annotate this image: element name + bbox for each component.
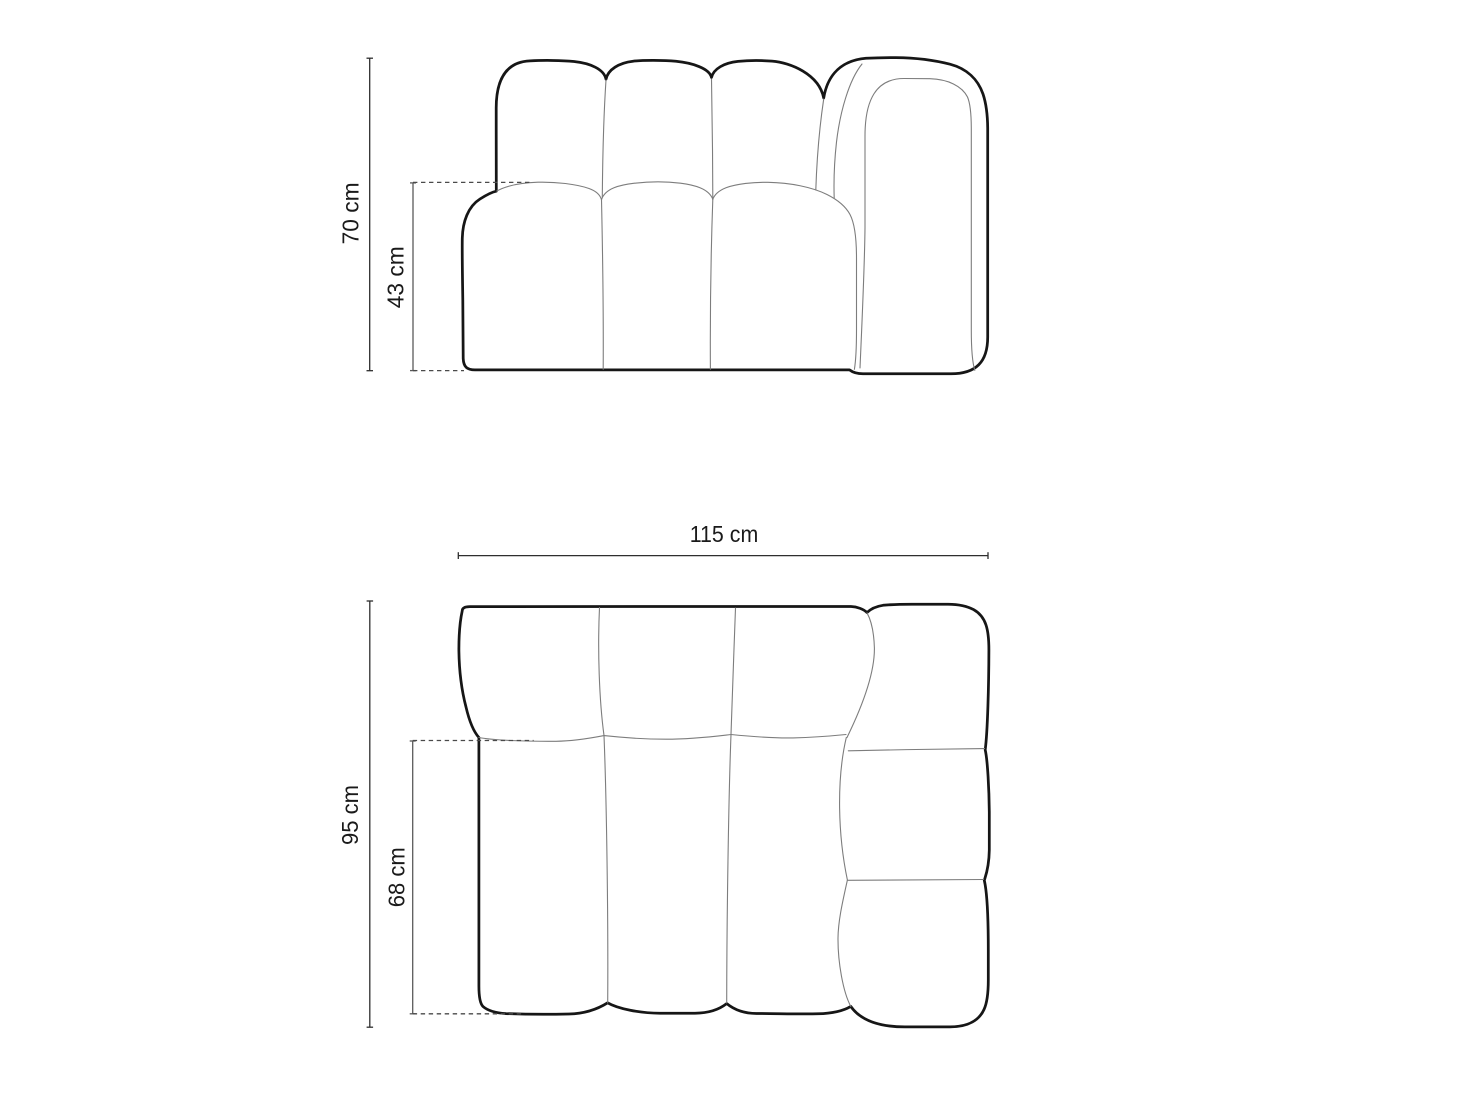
svg-text:115 cm: 115 cm — [690, 521, 759, 547]
svg-text:68 cm: 68 cm — [383, 847, 409, 907]
svg-text:70 cm: 70 cm — [337, 182, 363, 244]
svg-text:43 cm: 43 cm — [382, 246, 408, 308]
svg-text:95 cm: 95 cm — [337, 785, 363, 845]
